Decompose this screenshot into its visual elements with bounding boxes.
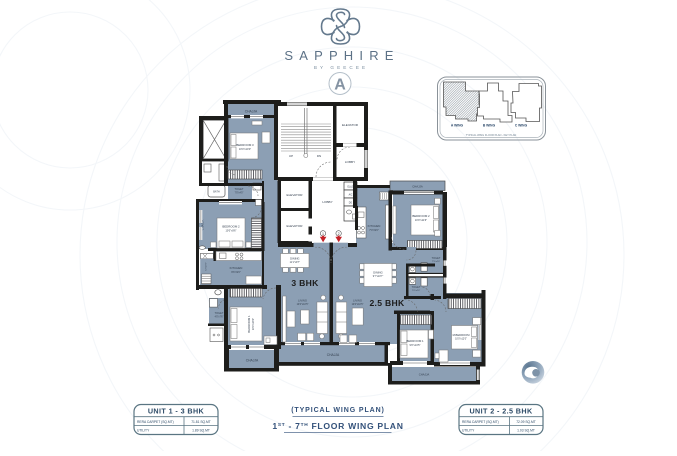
svg-text:CHAJJA: CHAJJA — [245, 110, 258, 114]
svg-text:9'7"x10'7": 9'7"x10'7" — [373, 275, 384, 278]
svg-text:10'0"x10'5": 10'0"x10'5" — [297, 303, 309, 306]
svg-text:10'0"x13'0": 10'0"x13'0" — [252, 318, 255, 330]
svg-text:(TYPICAL WING PLAN): (TYPICAL WING PLAN) — [291, 407, 385, 414]
svg-text:UTILITY: UTILITY — [206, 262, 208, 271]
svg-text:10'0"x10'0": 10'0"x10'0" — [239, 148, 251, 151]
svg-text:BY GEECEE: BY GEECEE — [314, 65, 368, 70]
svg-text:C WING: C WING — [515, 124, 528, 128]
svg-text:ELEVATOR: ELEVATOR — [287, 193, 304, 197]
svg-text:UNIT 1 - 3 BHK: UNIT 1 - 3 BHK — [148, 407, 205, 416]
svg-text:TOILET: TOILET — [412, 286, 421, 289]
svg-text:10'0"x9'6": 10'0"x9'6" — [226, 229, 237, 232]
svg-text:1ST - 7TH FLOOR WING PLAN: 1ST - 7TH FLOOR WING PLAN — [272, 421, 403, 431]
svg-text:CHAJJA: CHAJJA — [327, 353, 340, 357]
svg-text:LIVING: LIVING — [353, 299, 362, 303]
svg-text:BEDROOM 1: BEDROOM 1 — [406, 339, 424, 343]
svg-text:ELEVATOR: ELEVATOR — [287, 224, 304, 228]
svg-text:LOBBY: LOBBY — [322, 200, 332, 204]
svg-text:10'0"x12'0": 10'0"x12'0" — [455, 338, 467, 341]
svg-text:BEDROOM 2: BEDROOM 2 — [412, 214, 430, 218]
svg-text:2.5 BHK: 2.5 BHK — [369, 298, 405, 308]
svg-text:BEDROOM 2: BEDROOM 2 — [222, 225, 240, 229]
svg-text:LOBBY: LOBBY — [345, 160, 355, 164]
svg-text:CHAJJA: CHAJJA — [246, 359, 259, 363]
svg-text:CHAJJA: CHAJJA — [419, 373, 430, 377]
svg-text:TOILET: TOILET — [234, 187, 243, 191]
svg-text:ELEVATOR: ELEVATOR — [342, 123, 359, 127]
svg-text:2: 2 — [338, 232, 340, 236]
svg-text:3 BHK: 3 BHK — [291, 278, 319, 288]
svg-text:RERA CARPET (SQ.MT): RERA CARPET (SQ.MT) — [137, 420, 174, 424]
svg-text:10'0"x10'5": 10'0"x10'5" — [352, 303, 364, 306]
svg-text:BATH: BATH — [213, 191, 220, 194]
svg-text:M.BEDROOM: M.BEDROOM — [453, 333, 471, 337]
svg-text:7'0"x4'0": 7'0"x4'0" — [235, 193, 244, 195]
svg-text:DINING: DINING — [373, 271, 382, 275]
svg-text:A: A — [334, 77, 346, 94]
svg-text:BEDROOM 1: BEDROOM 1 — [247, 315, 251, 333]
svg-text:1.03 SQ.MT: 1.03 SQ.MT — [517, 429, 535, 433]
svg-text:11'1"x9'7": 11'1"x9'7" — [290, 261, 300, 264]
svg-text:KITCHEN: KITCHEN — [230, 266, 243, 270]
svg-text:SAPPHIRE: SAPPHIRE — [284, 48, 399, 63]
svg-text:TYPICAL WING FLOOR PLAN - KEY: TYPICAL WING FLOOR PLAN - KEY PLAN — [466, 133, 517, 137]
svg-text:DN: DN — [317, 154, 321, 158]
svg-text:LIVING: LIVING — [298, 299, 307, 303]
svg-text:10'0"x11'6": 10'0"x11'6" — [415, 219, 427, 222]
svg-text:7'0"x9'0": 7'0"x9'0" — [369, 229, 379, 232]
svg-text:DINING: DINING — [290, 257, 299, 261]
svg-text:1: 1 — [322, 232, 324, 236]
svg-text:CHAJJA: CHAJJA — [412, 184, 423, 188]
svg-text:A/C: A/C — [349, 193, 353, 196]
svg-text:UNIT 2 - 2.5 BHK: UNIT 2 - 2.5 BHK — [469, 407, 533, 416]
svg-text:UTILITY: UTILITY — [462, 429, 475, 433]
svg-text:UTILITY: UTILITY — [137, 429, 150, 433]
svg-text:7'5"x4'0": 7'5"x4'0" — [432, 261, 441, 263]
svg-text:DG: DG — [349, 202, 353, 204]
svg-text:B WING: B WING — [483, 124, 496, 128]
svg-text:UP: UP — [289, 154, 293, 158]
svg-text:71.81 SQ.MT: 71.81 SQ.MT — [191, 420, 211, 424]
svg-text:BEDROOM 3: BEDROOM 3 — [236, 143, 254, 147]
svg-text:1.89 SQ.MT: 1.89 SQ.MT — [192, 429, 210, 433]
svg-text:72.09 SQ.MT: 72.09 SQ.MT — [516, 420, 536, 424]
svg-text:9'0"x10'5": 9'0"x10'5" — [410, 344, 421, 347]
svg-text:TOILET: TOILET — [215, 312, 224, 315]
svg-text:A WING: A WING — [451, 124, 464, 128]
svg-text:EL&C: EL&C — [347, 186, 353, 188]
svg-text:RERA CARPET (SQ.MT): RERA CARPET (SQ.MT) — [462, 420, 499, 424]
svg-text:9'6"x9'0": 9'6"x9'0" — [231, 271, 241, 274]
svg-text:KITCHEN: KITCHEN — [368, 224, 381, 228]
svg-text:7'0"x4'0": 7'0"x4'0" — [412, 290, 421, 292]
svg-text:4'0"x7'6": 4'0"x7'6" — [215, 317, 224, 319]
svg-text:TOILET: TOILET — [432, 257, 441, 260]
